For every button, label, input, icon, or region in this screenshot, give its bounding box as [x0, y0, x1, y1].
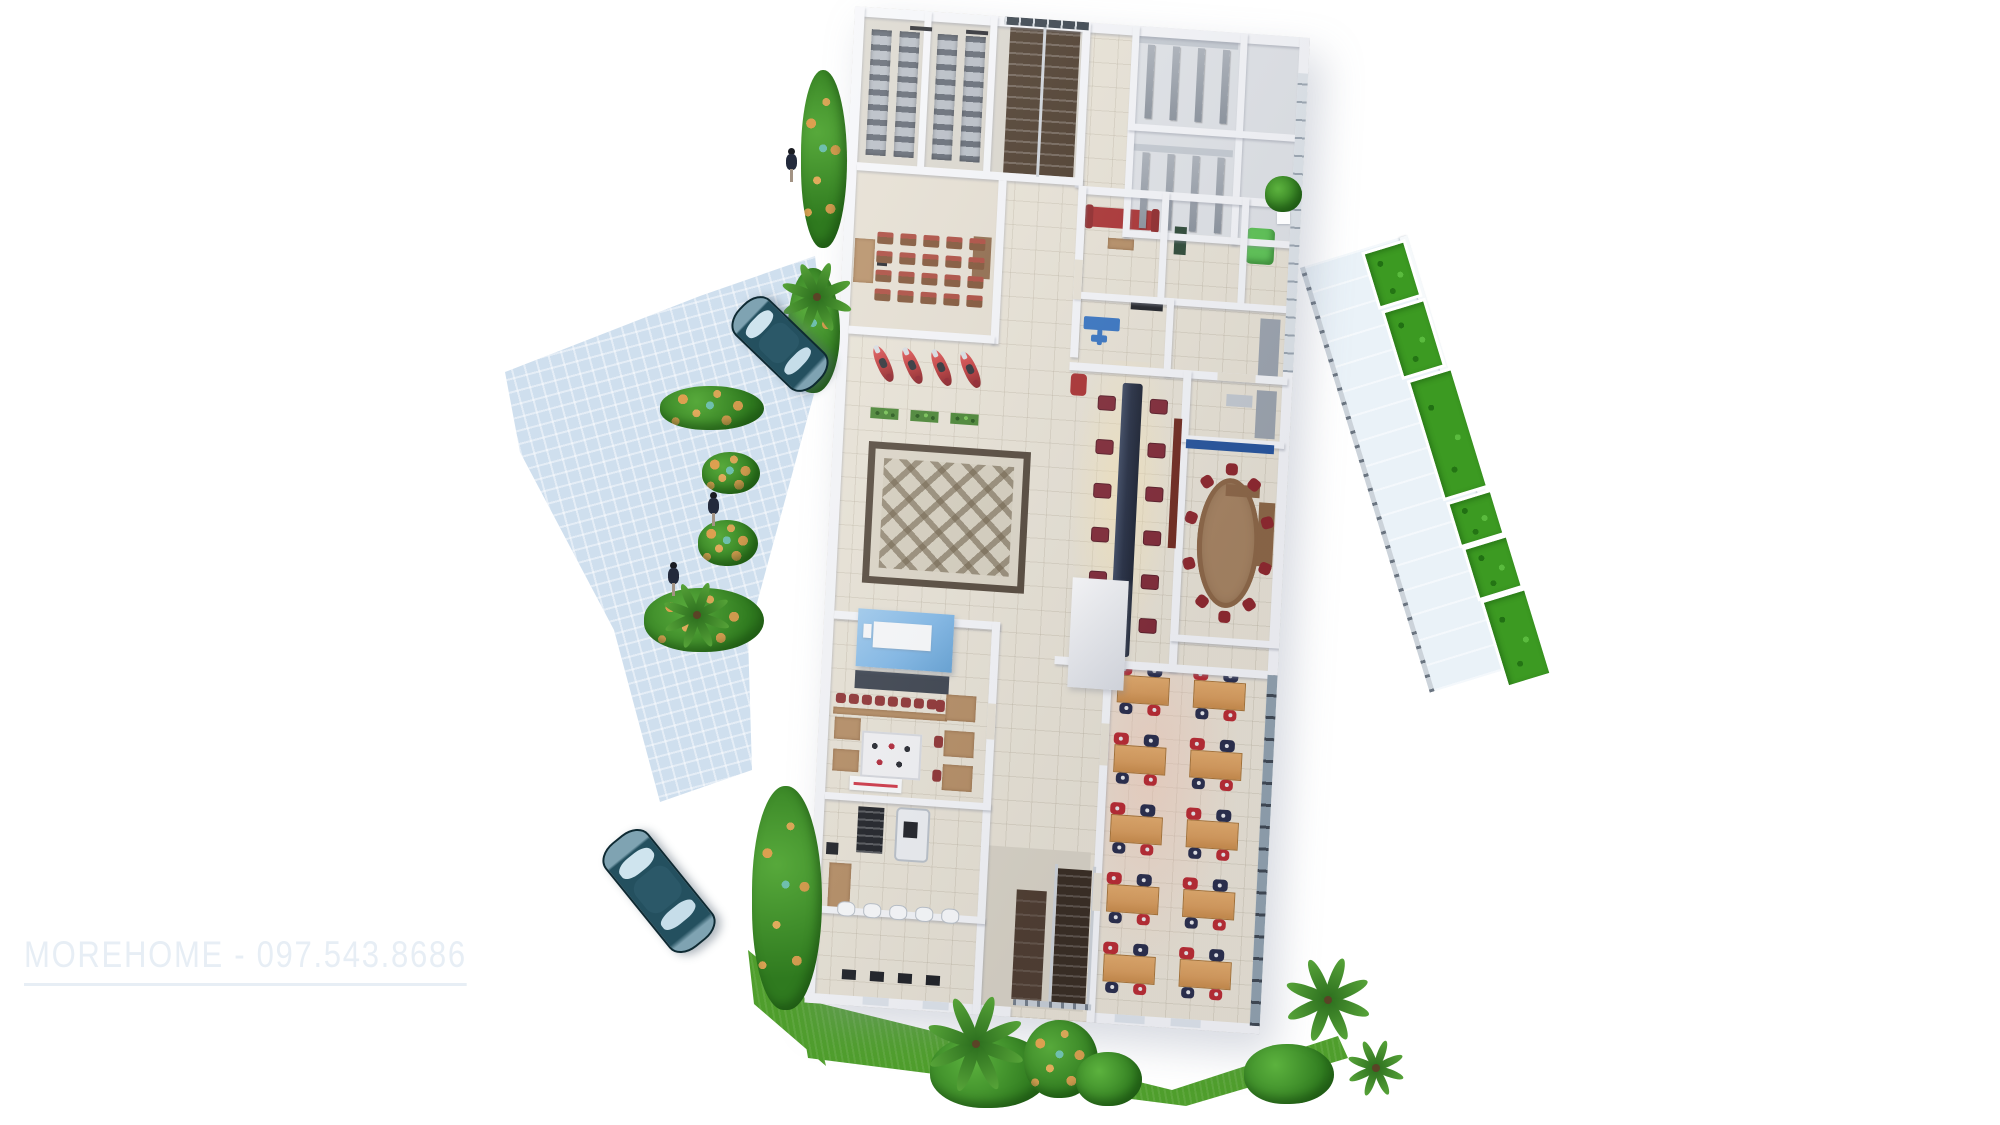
desk-chair	[1212, 919, 1226, 931]
plant-pot	[1277, 212, 1290, 224]
grass-planter	[1385, 301, 1443, 376]
shrub	[1265, 176, 1302, 212]
person-part	[668, 568, 679, 584]
teacher-desk	[853, 238, 875, 283]
desk-chair	[1114, 732, 1130, 745]
desk-chair	[1140, 844, 1154, 856]
canopy-sign	[873, 621, 932, 651]
person-part	[708, 498, 719, 514]
desk-chair	[1105, 982, 1119, 994]
desk-chair	[1147, 704, 1161, 716]
cabinet-gray	[1255, 390, 1277, 439]
sofa-arm	[1085, 204, 1094, 228]
desk-chair	[1188, 847, 1202, 859]
person-part	[712, 513, 715, 526]
person-part	[790, 169, 793, 182]
plant-box	[870, 407, 899, 420]
treadmill	[856, 806, 884, 854]
seat-dot	[870, 971, 885, 982]
cafe-table	[832, 748, 859, 772]
training-chair	[898, 271, 915, 284]
shrub	[801, 70, 847, 248]
seat-dot	[926, 975, 941, 986]
training-chair	[874, 288, 891, 301]
reception-chair	[1093, 483, 1112, 499]
side-terrace	[1300, 235, 1537, 692]
showroom-desk	[1193, 680, 1246, 712]
training-chair	[922, 254, 939, 267]
desk-chair	[1116, 772, 1130, 784]
desk-chair	[1195, 708, 1209, 720]
porch-roof	[1067, 577, 1129, 691]
cafe-chair	[849, 694, 860, 705]
sanitary-fixture	[915, 906, 934, 922]
training-chair	[923, 235, 940, 248]
showroom-desk	[1106, 884, 1159, 916]
cafe-table	[943, 730, 974, 758]
desk-chair	[1110, 802, 1126, 815]
desk-chair	[1220, 740, 1236, 753]
showroom-desk	[1182, 889, 1235, 921]
chair-blue	[1097, 329, 1103, 345]
desk-chair	[1181, 987, 1195, 999]
palm-trunk	[813, 293, 821, 301]
person	[708, 492, 720, 530]
training-chair	[943, 293, 960, 306]
cafe-chair	[934, 736, 944, 749]
showroom-desk	[1102, 953, 1155, 985]
desk-chair	[1220, 780, 1234, 792]
entry-staircase	[1051, 868, 1092, 1008]
training-chair	[968, 257, 985, 270]
reception-chair	[1138, 618, 1157, 634]
palm-trunk	[972, 1040, 980, 1048]
reception-chair	[1140, 574, 1159, 590]
massage-seat	[903, 821, 918, 838]
reception-chair	[1095, 439, 1114, 455]
cafe-table	[942, 764, 973, 792]
desk-chair	[1182, 877, 1198, 890]
desk-chair	[1209, 989, 1223, 1001]
showroom-desk	[1110, 814, 1163, 846]
desk-chair	[1186, 807, 1202, 820]
plant-box	[910, 410, 939, 423]
training-chair	[900, 233, 917, 246]
desk-chair	[1223, 710, 1237, 722]
reception-chair	[1143, 530, 1162, 546]
desk-chair	[1136, 914, 1150, 926]
desk-chair	[1106, 872, 1122, 885]
window-slot	[862, 997, 888, 1007]
showroom-desk	[1113, 744, 1166, 776]
desk-chair	[1140, 804, 1156, 817]
shrub	[660, 386, 764, 430]
desk-chair	[1179, 947, 1195, 960]
grass-planter	[1410, 370, 1485, 497]
desk-chair	[1209, 949, 1225, 962]
reception-chair	[1097, 395, 1116, 411]
sideboard	[1256, 502, 1275, 567]
palm-trunk	[1324, 996, 1332, 1004]
cafe-chair	[836, 693, 847, 704]
sofa-arm	[1151, 209, 1160, 233]
armchair-red	[1070, 373, 1087, 396]
stool	[826, 842, 839, 855]
cafe-chair	[875, 695, 886, 706]
shrub	[1244, 1044, 1334, 1104]
medallion-floor	[862, 441, 1031, 594]
showroom-desk	[1186, 819, 1239, 851]
desk-chair	[1190, 737, 1206, 750]
training-chair	[945, 255, 962, 268]
palm-trunk	[693, 611, 701, 619]
cafe-chair	[888, 696, 899, 707]
cafe-table	[945, 694, 976, 722]
training-chair	[921, 273, 938, 286]
training-chair	[946, 236, 963, 249]
desk-chair	[1136, 874, 1152, 887]
cabinet-gray	[1258, 318, 1281, 379]
palm-tree	[1286, 958, 1370, 1042]
training-chair	[967, 276, 984, 289]
desk-chair	[1144, 734, 1160, 747]
reception-chair	[1147, 442, 1166, 458]
display-case	[860, 731, 922, 781]
entry-ramp	[1011, 889, 1047, 1001]
desk-chair	[1133, 943, 1149, 956]
watermark-text: MOREHOME - 097.543.8686	[24, 934, 467, 986]
coffee-table	[1108, 238, 1135, 251]
cafe-chair	[914, 698, 925, 709]
sanitary-fixture	[889, 904, 908, 920]
plant-box	[950, 413, 979, 426]
desk-chair	[1103, 941, 1119, 954]
conference-chair	[1225, 463, 1238, 476]
training-chair	[897, 290, 914, 303]
person	[668, 562, 680, 600]
training-chair	[969, 238, 986, 251]
shrub	[1076, 1052, 1142, 1106]
person-part	[786, 154, 797, 170]
conference-chair	[1218, 610, 1231, 623]
canopy-door	[863, 624, 872, 639]
desk-chair	[1216, 809, 1232, 822]
desk-chair	[1108, 912, 1122, 924]
desk-chair	[1119, 703, 1133, 715]
cafe-chair	[927, 699, 938, 710]
desk-chair	[1112, 842, 1126, 854]
seat-dot	[898, 973, 913, 984]
palm-tree	[928, 996, 1024, 1092]
reception-chair	[1091, 527, 1110, 543]
sanitary-fixture	[941, 908, 960, 924]
grass-planter	[1484, 591, 1549, 686]
training-chair	[944, 274, 961, 287]
render-scene: MOREHOME - 097.543.8686	[0, 0, 2000, 1125]
person	[786, 148, 798, 186]
shrub	[698, 520, 758, 566]
cafe-chair	[862, 694, 873, 705]
person-part	[672, 583, 675, 596]
training-chair	[876, 251, 893, 264]
desk-chair	[1184, 917, 1198, 929]
shrub	[752, 786, 822, 1010]
reception-chair	[1149, 399, 1168, 415]
watermark: MOREHOME - 097.543.8686	[24, 934, 467, 986]
training-chair	[966, 295, 983, 308]
desk-chair	[1192, 778, 1206, 790]
car	[595, 821, 723, 960]
showroom-desk	[1178, 959, 1231, 991]
palm-trunk	[1372, 1064, 1380, 1072]
training-chair	[920, 292, 937, 305]
cabinet-gray	[1226, 394, 1253, 408]
cafe-chair	[901, 697, 912, 708]
palm-tree	[1348, 1040, 1404, 1096]
sanitary-fixture	[863, 903, 882, 919]
building-floorplan	[804, 6, 1310, 1034]
cafe-table	[834, 717, 861, 741]
seat-dot	[842, 969, 857, 980]
showroom-desk	[1117, 674, 1170, 706]
desk-chair	[1133, 983, 1147, 995]
reception-chair	[1145, 486, 1164, 502]
desk-chair	[1144, 774, 1158, 786]
desk-chair	[1212, 879, 1228, 892]
cafe-chair	[932, 769, 942, 782]
training-chair	[899, 252, 916, 265]
showroom-desk	[1189, 749, 1242, 781]
sanitary-fixture	[837, 901, 856, 917]
shrub	[702, 452, 760, 494]
training-chair	[875, 269, 892, 282]
training-chair	[877, 232, 894, 245]
desk-chair	[1216, 849, 1230, 861]
